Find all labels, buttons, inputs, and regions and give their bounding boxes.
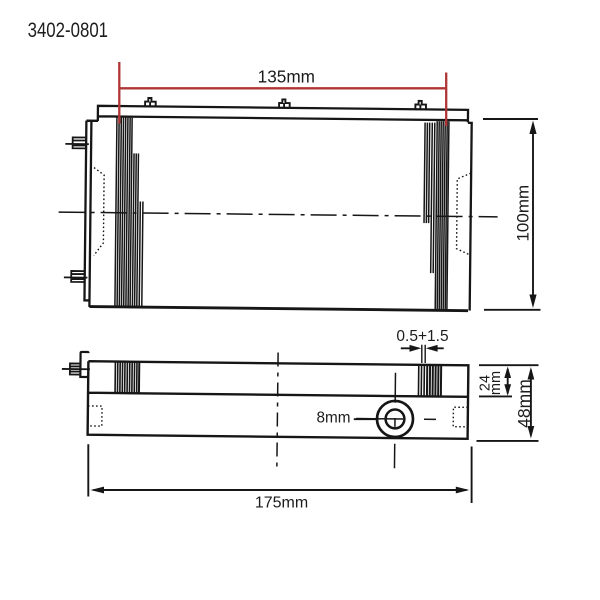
- svg-text:135mm: 135mm: [258, 66, 315, 86]
- svg-text:3402-0801: 3402-0801: [28, 19, 108, 42]
- svg-text:mm: mm: [488, 371, 504, 395]
- svg-text:0.5+1.5: 0.5+1.5: [396, 328, 448, 345]
- svg-text:175mm: 175mm: [255, 494, 308, 511]
- svg-text:8mm: 8mm: [317, 409, 351, 426]
- svg-text:48mm: 48mm: [514, 379, 534, 428]
- svg-text:100mm: 100mm: [514, 185, 533, 242]
